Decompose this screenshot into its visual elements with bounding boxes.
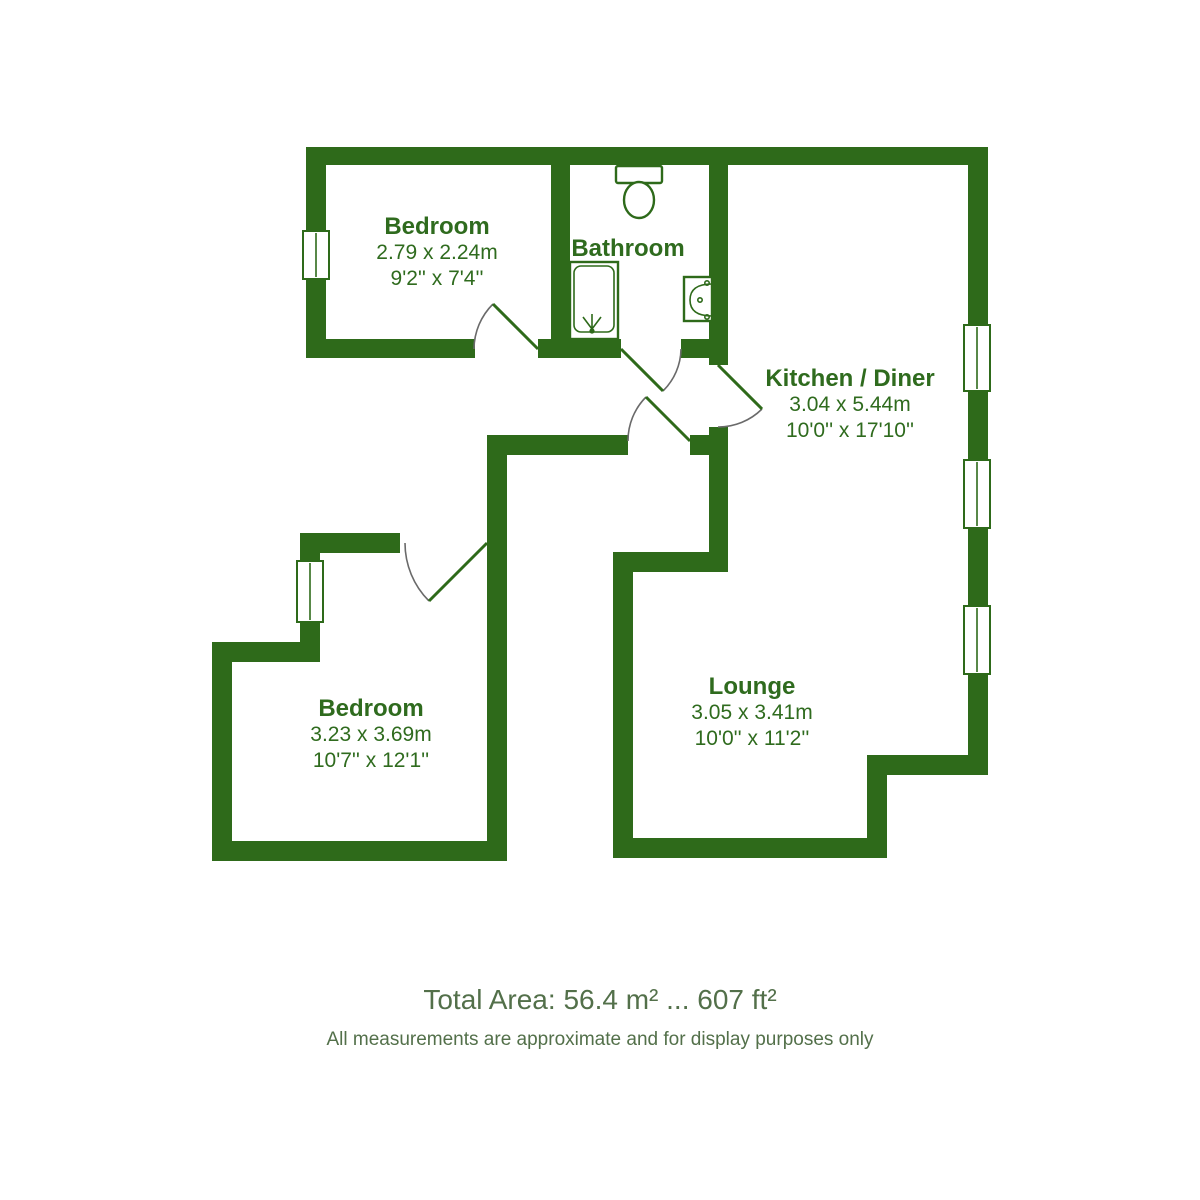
room-name: Bedroom xyxy=(310,696,431,722)
window-kitchen-1-icon xyxy=(964,325,990,391)
shower-icon xyxy=(570,262,618,339)
toilet-icon xyxy=(616,166,662,218)
wall-bedroom2-bottom xyxy=(212,841,507,861)
wall-bedroom2-left xyxy=(212,642,232,861)
bathroom-door-icon xyxy=(621,349,681,391)
wall-bathroom-kitchen-divider xyxy=(709,147,728,365)
sink-icon xyxy=(684,277,712,321)
wall-bathroom-bottom xyxy=(551,339,621,358)
wall-lounge-bottom xyxy=(613,838,887,858)
room-dim-imperial: 10'7'' x 12'1'' xyxy=(310,748,431,774)
windows xyxy=(297,231,990,674)
room-label-lounge: Lounge 3.05 x 3.41m 10'0'' x 11'2'' xyxy=(691,674,812,752)
wall-bathroom-left xyxy=(551,147,570,358)
room-dim-metric: 2.79 x 2.24m xyxy=(376,240,497,266)
room-dim-metric: 3.23 x 3.69m xyxy=(310,722,431,748)
room-name: Bedroom xyxy=(376,214,497,240)
room-label-bedroom-2: Bedroom 3.23 x 3.69m 10'7'' x 12'1'' xyxy=(310,696,431,774)
wall-bedroom1-bottom xyxy=(306,339,475,358)
kitchen-door-icon xyxy=(718,365,762,427)
room-name: Lounge xyxy=(691,674,812,700)
window-kitchen-3-icon xyxy=(964,606,990,674)
room-name: Bathroom xyxy=(571,236,684,262)
floorplan-page: Bedroom 2.79 x 2.24m 9'2'' x 7'4'' Bathr… xyxy=(0,0,1200,1200)
wall-bedroom2-right xyxy=(487,435,507,861)
room-dim-imperial: 10'0'' x 11'2'' xyxy=(691,726,812,752)
wall-entrance-jamb xyxy=(690,435,728,455)
wall-lounge-left xyxy=(613,552,633,858)
disclaimer-text: All measurements are approximate and for… xyxy=(326,1029,873,1051)
room-label-bathroom: Bathroom xyxy=(571,236,684,262)
wall-top xyxy=(308,147,988,165)
room-label-kitchen-diner: Kitchen / Diner 3.04 x 5.44m 10'0'' x 17… xyxy=(765,366,934,444)
total-area-text: Total Area: 56.4 m² ... 607 ft² xyxy=(423,984,776,1016)
window-bedroom1-icon xyxy=(303,231,329,279)
wall-entrance xyxy=(487,435,628,455)
window-kitchen-2-icon xyxy=(964,460,990,528)
room-dim-metric: 3.05 x 3.41m xyxy=(691,700,812,726)
floorplan-drawing xyxy=(0,0,1200,1200)
bedroom-1-door-icon xyxy=(474,304,538,349)
room-dim-imperial: 9'2'' x 7'4'' xyxy=(376,266,497,292)
room-dim-imperial: 10'0'' x 17'10'' xyxy=(765,418,934,444)
bedroom-2-door-icon xyxy=(405,543,487,601)
entrance-door-icon xyxy=(628,397,690,441)
room-dim-metric: 3.04 x 5.44m xyxy=(765,392,934,418)
room-label-bedroom-1: Bedroom 2.79 x 2.24m 9'2'' x 7'4'' xyxy=(376,214,497,292)
room-name: Kitchen / Diner xyxy=(765,366,934,392)
window-bedroom2-icon xyxy=(297,561,323,622)
